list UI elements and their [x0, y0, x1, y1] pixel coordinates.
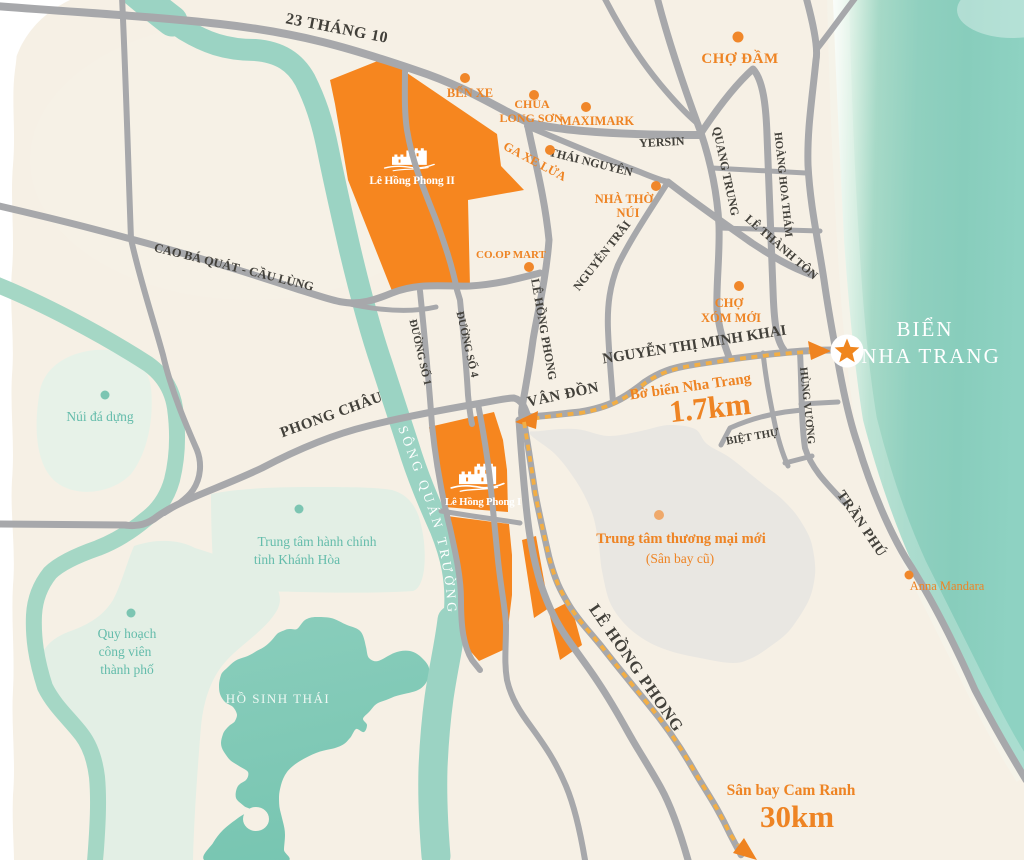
svg-text:MAXIMARK: MAXIMARK: [560, 114, 635, 128]
svg-text:Lê Hồng Phong II: Lê Hồng Phong II: [369, 174, 455, 187]
svg-text:Sân bay Cam Ranh: Sân bay Cam Ranh: [727, 782, 856, 799]
svg-text:BẾN XE: BẾN XE: [447, 85, 493, 100]
svg-text:Quy hoạch: Quy hoạch: [98, 626, 157, 641]
svg-text:BIỂN: BIỂN: [897, 317, 954, 341]
svg-text:NHA TRANG: NHA TRANG: [861, 344, 1001, 368]
svg-text:CO.OP MART: CO.OP MART: [476, 249, 547, 261]
svg-text:Núi đá dựng: Núi đá dựng: [66, 409, 134, 424]
svg-text:30km: 30km: [760, 799, 834, 834]
svg-text:YERSIN: YERSIN: [639, 134, 685, 150]
svg-text:CHỢ ĐẦM: CHỢ ĐẦM: [701, 50, 778, 67]
svg-text:NHÀ THỜ: NHÀ THỜ: [595, 192, 654, 206]
svg-text:Lê Hồng Phong I: Lê Hồng Phong I: [445, 496, 521, 508]
svg-text:thành phố: thành phố: [100, 662, 154, 677]
svg-text:(Sân bay cũ): (Sân bay cũ): [646, 551, 714, 566]
svg-text:LONG SƠN: LONG SƠN: [499, 111, 562, 125]
svg-text:CHỢ: CHỢ: [715, 296, 744, 310]
svg-text:Anna Mandara: Anna Mandara: [910, 579, 985, 593]
svg-text:công viên: công viên: [99, 644, 152, 659]
svg-text:CHÙA: CHÙA: [514, 97, 550, 111]
svg-text:tỉnh Khánh Hòa: tỉnh Khánh Hòa: [254, 552, 340, 567]
svg-text:Trung tâm hành chính: Trung tâm hành chính: [257, 534, 376, 549]
svg-text:XÓM MỚI: XÓM MỚI: [701, 311, 761, 325]
svg-text:Trung tâm thương mại mới: Trung tâm thương mại mới: [596, 531, 766, 547]
svg-text:HỒ SINH THÁI: HỒ SINH THÁI: [226, 691, 330, 706]
svg-text:NÚI: NÚI: [617, 206, 640, 220]
